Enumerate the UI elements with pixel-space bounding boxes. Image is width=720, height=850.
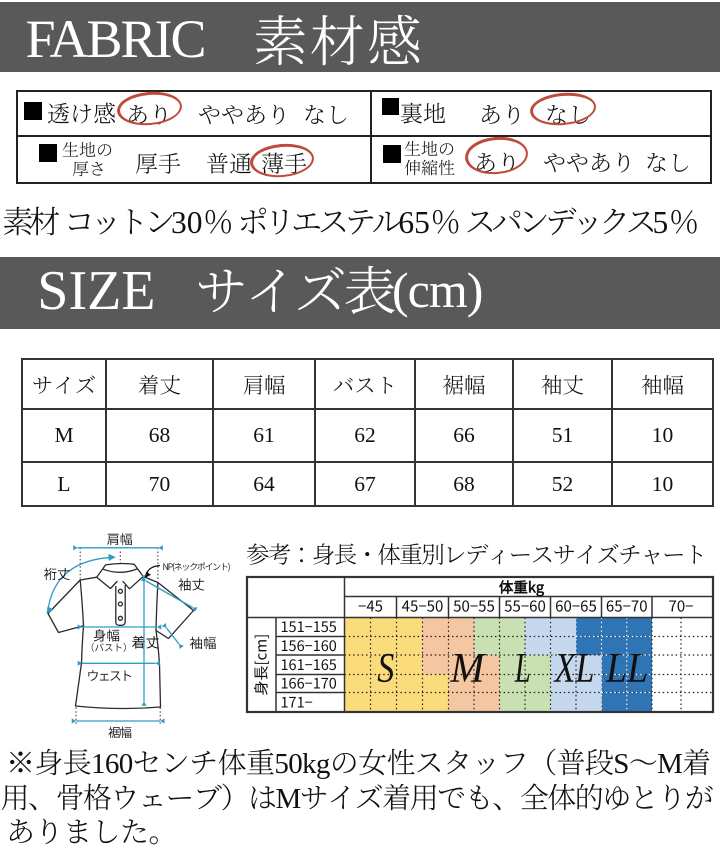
svg-text:70−: 70− [669, 596, 694, 617]
svg-text:60−65: 60−65 [555, 596, 597, 617]
svg-text:XL: XL [553, 646, 595, 692]
svg-text:身長[cm]: 身長[cm] [251, 634, 272, 696]
svg-text:45−50: 45−50 [402, 596, 444, 617]
svg-text:65−70: 65−70 [606, 596, 648, 617]
svg-text:171−: 171− [281, 691, 313, 712]
svg-text:55−60: 55−60 [504, 596, 546, 617]
svg-text:S: S [377, 646, 394, 692]
svg-text:L: L [514, 646, 531, 692]
svg-text:50−55: 50−55 [453, 596, 495, 617]
svg-text:−45: −45 [358, 596, 383, 617]
svg-text:体重kg: 体重kg [499, 577, 545, 598]
svg-text:LL: LL [605, 646, 648, 692]
svg-text:M: M [449, 646, 486, 692]
svg-text:156−160: 156−160 [281, 635, 337, 656]
